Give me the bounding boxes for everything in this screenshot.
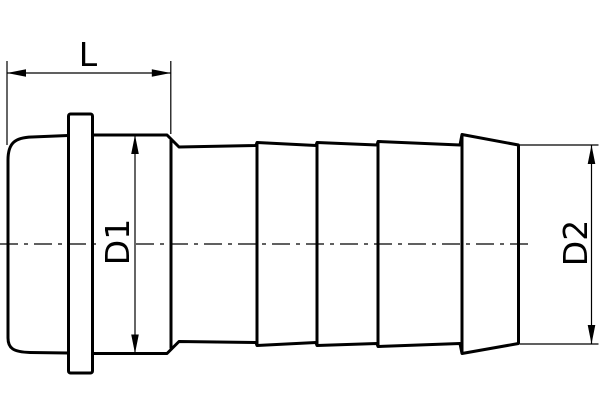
- dim-D2-label: D2: [556, 220, 595, 266]
- dim-D1-label: D1: [98, 219, 137, 265]
- drawing-canvas: L D1 D2: [0, 0, 600, 400]
- dim-L-arrow-left: [7, 69, 26, 77]
- dim-L-arrow-right: [152, 69, 171, 77]
- dim-D2-arrow-bottom: [588, 325, 596, 344]
- dimension-D2: D2: [520, 145, 599, 344]
- hose-fitting-drawing: L D1 D2: [0, 0, 600, 400]
- dim-D2-arrow-top: [588, 145, 596, 164]
- dim-L-label: L: [79, 35, 98, 74]
